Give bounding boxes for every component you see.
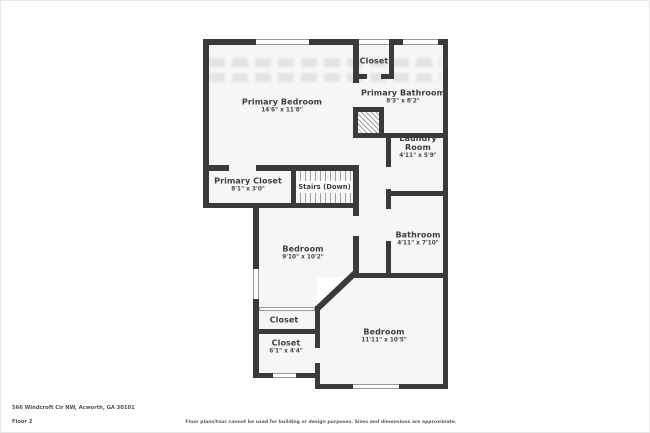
- room-label-stairs: Stairs (Down): [297, 181, 352, 193]
- address-line: 566 Windcroft Cir NW, Acworth, GA 30101: [12, 405, 135, 411]
- wall-segment: [315, 306, 320, 348]
- room-dims: 14'6" x 11'8": [242, 108, 322, 115]
- room-dims: 6'1" x 4'4": [269, 349, 303, 356]
- wall-segment: [386, 241, 391, 273]
- closet-sliding-door: [259, 307, 315, 311]
- room-label-primary-bedroom: Primary Bedroom 14'6" x 11'8": [242, 98, 322, 115]
- room-name: Bathroom: [395, 231, 440, 240]
- room-name: Primary Bathroom: [361, 89, 445, 98]
- wall-segment: [389, 45, 394, 79]
- room-name: Bedroom: [282, 245, 324, 254]
- disclaimer-text: Floor plans/tour cannot be used for buil…: [185, 420, 456, 425]
- wall-segment: [353, 273, 448, 278]
- wall-segment: [353, 39, 359, 83]
- wall-segment: [309, 39, 359, 45]
- room-name: Primary Closet: [214, 177, 282, 186]
- wall-segment: [203, 39, 256, 45]
- window: [353, 384, 399, 389]
- window: [256, 39, 309, 45]
- room-label-bedroom-lower: Bedroom 11'11" x 10'5": [361, 328, 407, 345]
- wall-segment: [353, 165, 359, 216]
- wall-segment: [315, 384, 353, 389]
- room-name: Primary Bedroom: [242, 98, 322, 107]
- room-label-closet-top: Closet: [360, 57, 389, 66]
- window: [403, 39, 438, 45]
- wall-segment: [386, 189, 391, 209]
- room-label-primary-bathroom: Primary Bathroom 8'3" x 8'2": [361, 89, 445, 106]
- room-name: Bedroom: [361, 328, 407, 337]
- window: [273, 373, 296, 378]
- hatched-shaft: [353, 107, 384, 138]
- wall-segment: [203, 203, 358, 208]
- wall-segment: [253, 208, 259, 269]
- room-label-closet-mid: Closet: [270, 316, 299, 325]
- wall-segment: [315, 363, 320, 389]
- wall-segment: [253, 329, 320, 334]
- room-label-laundry: Laundry Room 4'11" x 5'9": [393, 134, 443, 160]
- room-dims: 4'11" x 7'10": [395, 241, 440, 248]
- room-dims: 8'1" x 3'0": [214, 187, 282, 194]
- watermark-line: [209, 58, 441, 67]
- room-label-bathroom: Bathroom 4'11" x 7'10": [395, 231, 440, 248]
- wall-segment: [203, 39, 209, 208]
- wall-segment: [386, 191, 448, 196]
- wall-segment: [386, 138, 391, 167]
- window: [253, 269, 259, 299]
- room-label-bedroom-mid: Bedroom 9'10" x 10'2": [282, 245, 324, 262]
- room-dims: 9'10" x 10'2": [282, 255, 324, 262]
- room-dims: 8'3" x 8'2": [361, 99, 445, 106]
- room-name: Closet: [270, 316, 299, 325]
- room-label-closet-lower: Closet 6'1" x 4'4": [269, 339, 303, 356]
- window: [359, 39, 389, 45]
- room-name: Laundry Room: [393, 134, 443, 152]
- floorplan-canvas: Primary Bedroom 14'6" x 11'8" Closet Pri…: [0, 0, 650, 433]
- watermark-line: [209, 73, 441, 82]
- room-name: Closet: [269, 339, 303, 348]
- room-dims: 11'11" x 10'5": [361, 338, 407, 345]
- room-name: Closet: [360, 57, 389, 66]
- room-dims: 4'11" x 5'9": [393, 153, 443, 160]
- room-label-primary-closet: Primary Closet 8'1" x 3'0": [214, 177, 282, 194]
- wall-segment: [399, 384, 448, 389]
- floor-label: Floor 2: [12, 419, 32, 425]
